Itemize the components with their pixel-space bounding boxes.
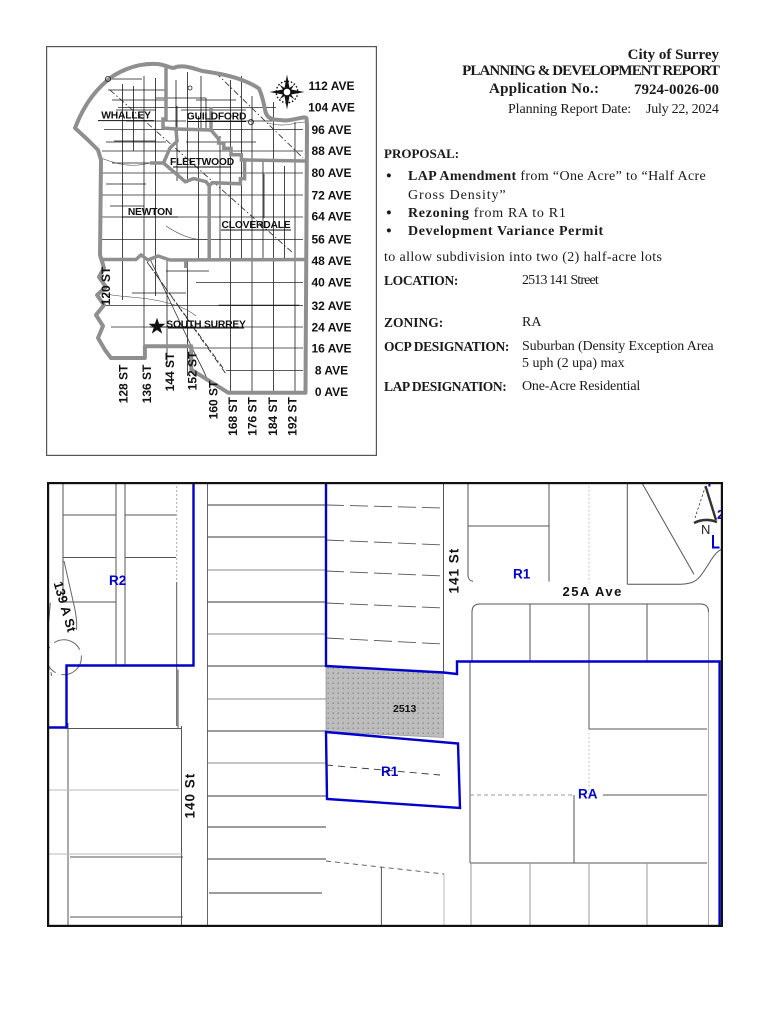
svg-text:FLEETWOOD: FLEETWOOD: [170, 157, 234, 168]
svg-text:128 ST: 128 ST: [117, 364, 131, 403]
svg-text:48 AVE: 48 AVE: [311, 254, 351, 268]
svg-text:72 AVE: 72 AVE: [311, 188, 351, 202]
svg-text:184 ST: 184 ST: [266, 396, 280, 435]
svg-text:25A Ave: 25A Ave: [563, 584, 623, 599]
svg-text:16 AVE: 16 AVE: [311, 341, 351, 355]
svg-text:WHALLEY: WHALLEY: [101, 111, 151, 122]
svg-text:CLOVERDALE: CLOVERDALE: [222, 220, 291, 231]
svg-text:N: N: [701, 522, 710, 537]
svg-text:40 AVE: 40 AVE: [311, 276, 351, 290]
svg-text:139 A St: 139 A St: [51, 580, 80, 635]
svg-text:R1: R1: [381, 764, 399, 779]
svg-text:192 ST: 192 ST: [286, 396, 300, 435]
svg-text:32 AVE: 32 AVE: [311, 299, 351, 313]
svg-text:8 AVE: 8 AVE: [315, 364, 348, 378]
svg-text:152 ST: 152 ST: [186, 351, 200, 390]
svg-text:136 ST: 136 ST: [140, 364, 154, 403]
svg-text:80 AVE: 80 AVE: [311, 166, 351, 180]
svg-text:SOUTH SURREY: SOUTH SURREY: [166, 320, 246, 331]
svg-text:140 St: 140 St: [183, 773, 198, 819]
svg-text:RA: RA: [578, 787, 598, 802]
svg-text:88 AVE: 88 AVE: [311, 144, 351, 158]
svg-text:2513: 2513: [393, 703, 417, 715]
svg-text:141 St: 141 St: [447, 548, 462, 594]
svg-text:120 ST: 120 ST: [99, 266, 113, 305]
svg-text:104 AVE: 104 AVE: [308, 101, 355, 115]
svg-text:168 ST: 168 ST: [226, 396, 240, 435]
svg-text:96 AVE: 96 AVE: [311, 123, 351, 137]
svg-text:144 ST: 144 ST: [163, 352, 177, 391]
svg-text:NEWTON: NEWTON: [128, 207, 172, 218]
svg-text:160 ST: 160 ST: [207, 380, 221, 419]
svg-text:GUILDFORD: GUILDFORD: [187, 112, 246, 123]
svg-text:176 ST: 176 ST: [246, 396, 260, 435]
svg-text:112 AVE: 112 AVE: [308, 79, 354, 93]
svg-text:0 AVE: 0 AVE: [315, 385, 348, 399]
svg-text:R2: R2: [109, 573, 126, 588]
svg-text:56 AVE: 56 AVE: [311, 233, 351, 247]
svg-text:24 AVE: 24 AVE: [311, 320, 351, 334]
svg-text:R1: R1: [513, 567, 531, 582]
svg-text:64 AVE: 64 AVE: [311, 209, 351, 223]
